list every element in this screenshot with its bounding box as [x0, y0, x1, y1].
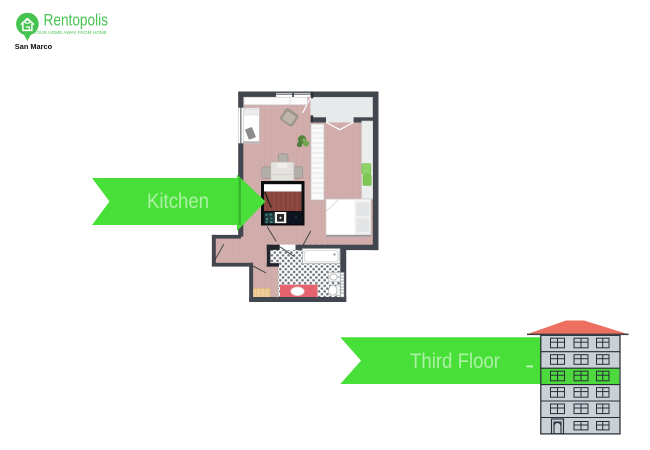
svg-text:Kitchen: Kitchen: [147, 190, 209, 213]
svg-text:Third Floor: Third Floor: [410, 350, 500, 373]
svg-text:YOUR HOME AWAY FROM HOME: YOUR HOME AWAY FROM HOME: [33, 30, 107, 35]
svg-text:San Marco: San Marco: [15, 42, 53, 51]
svg-text:Rentopolis: Rentopolis: [44, 11, 109, 29]
